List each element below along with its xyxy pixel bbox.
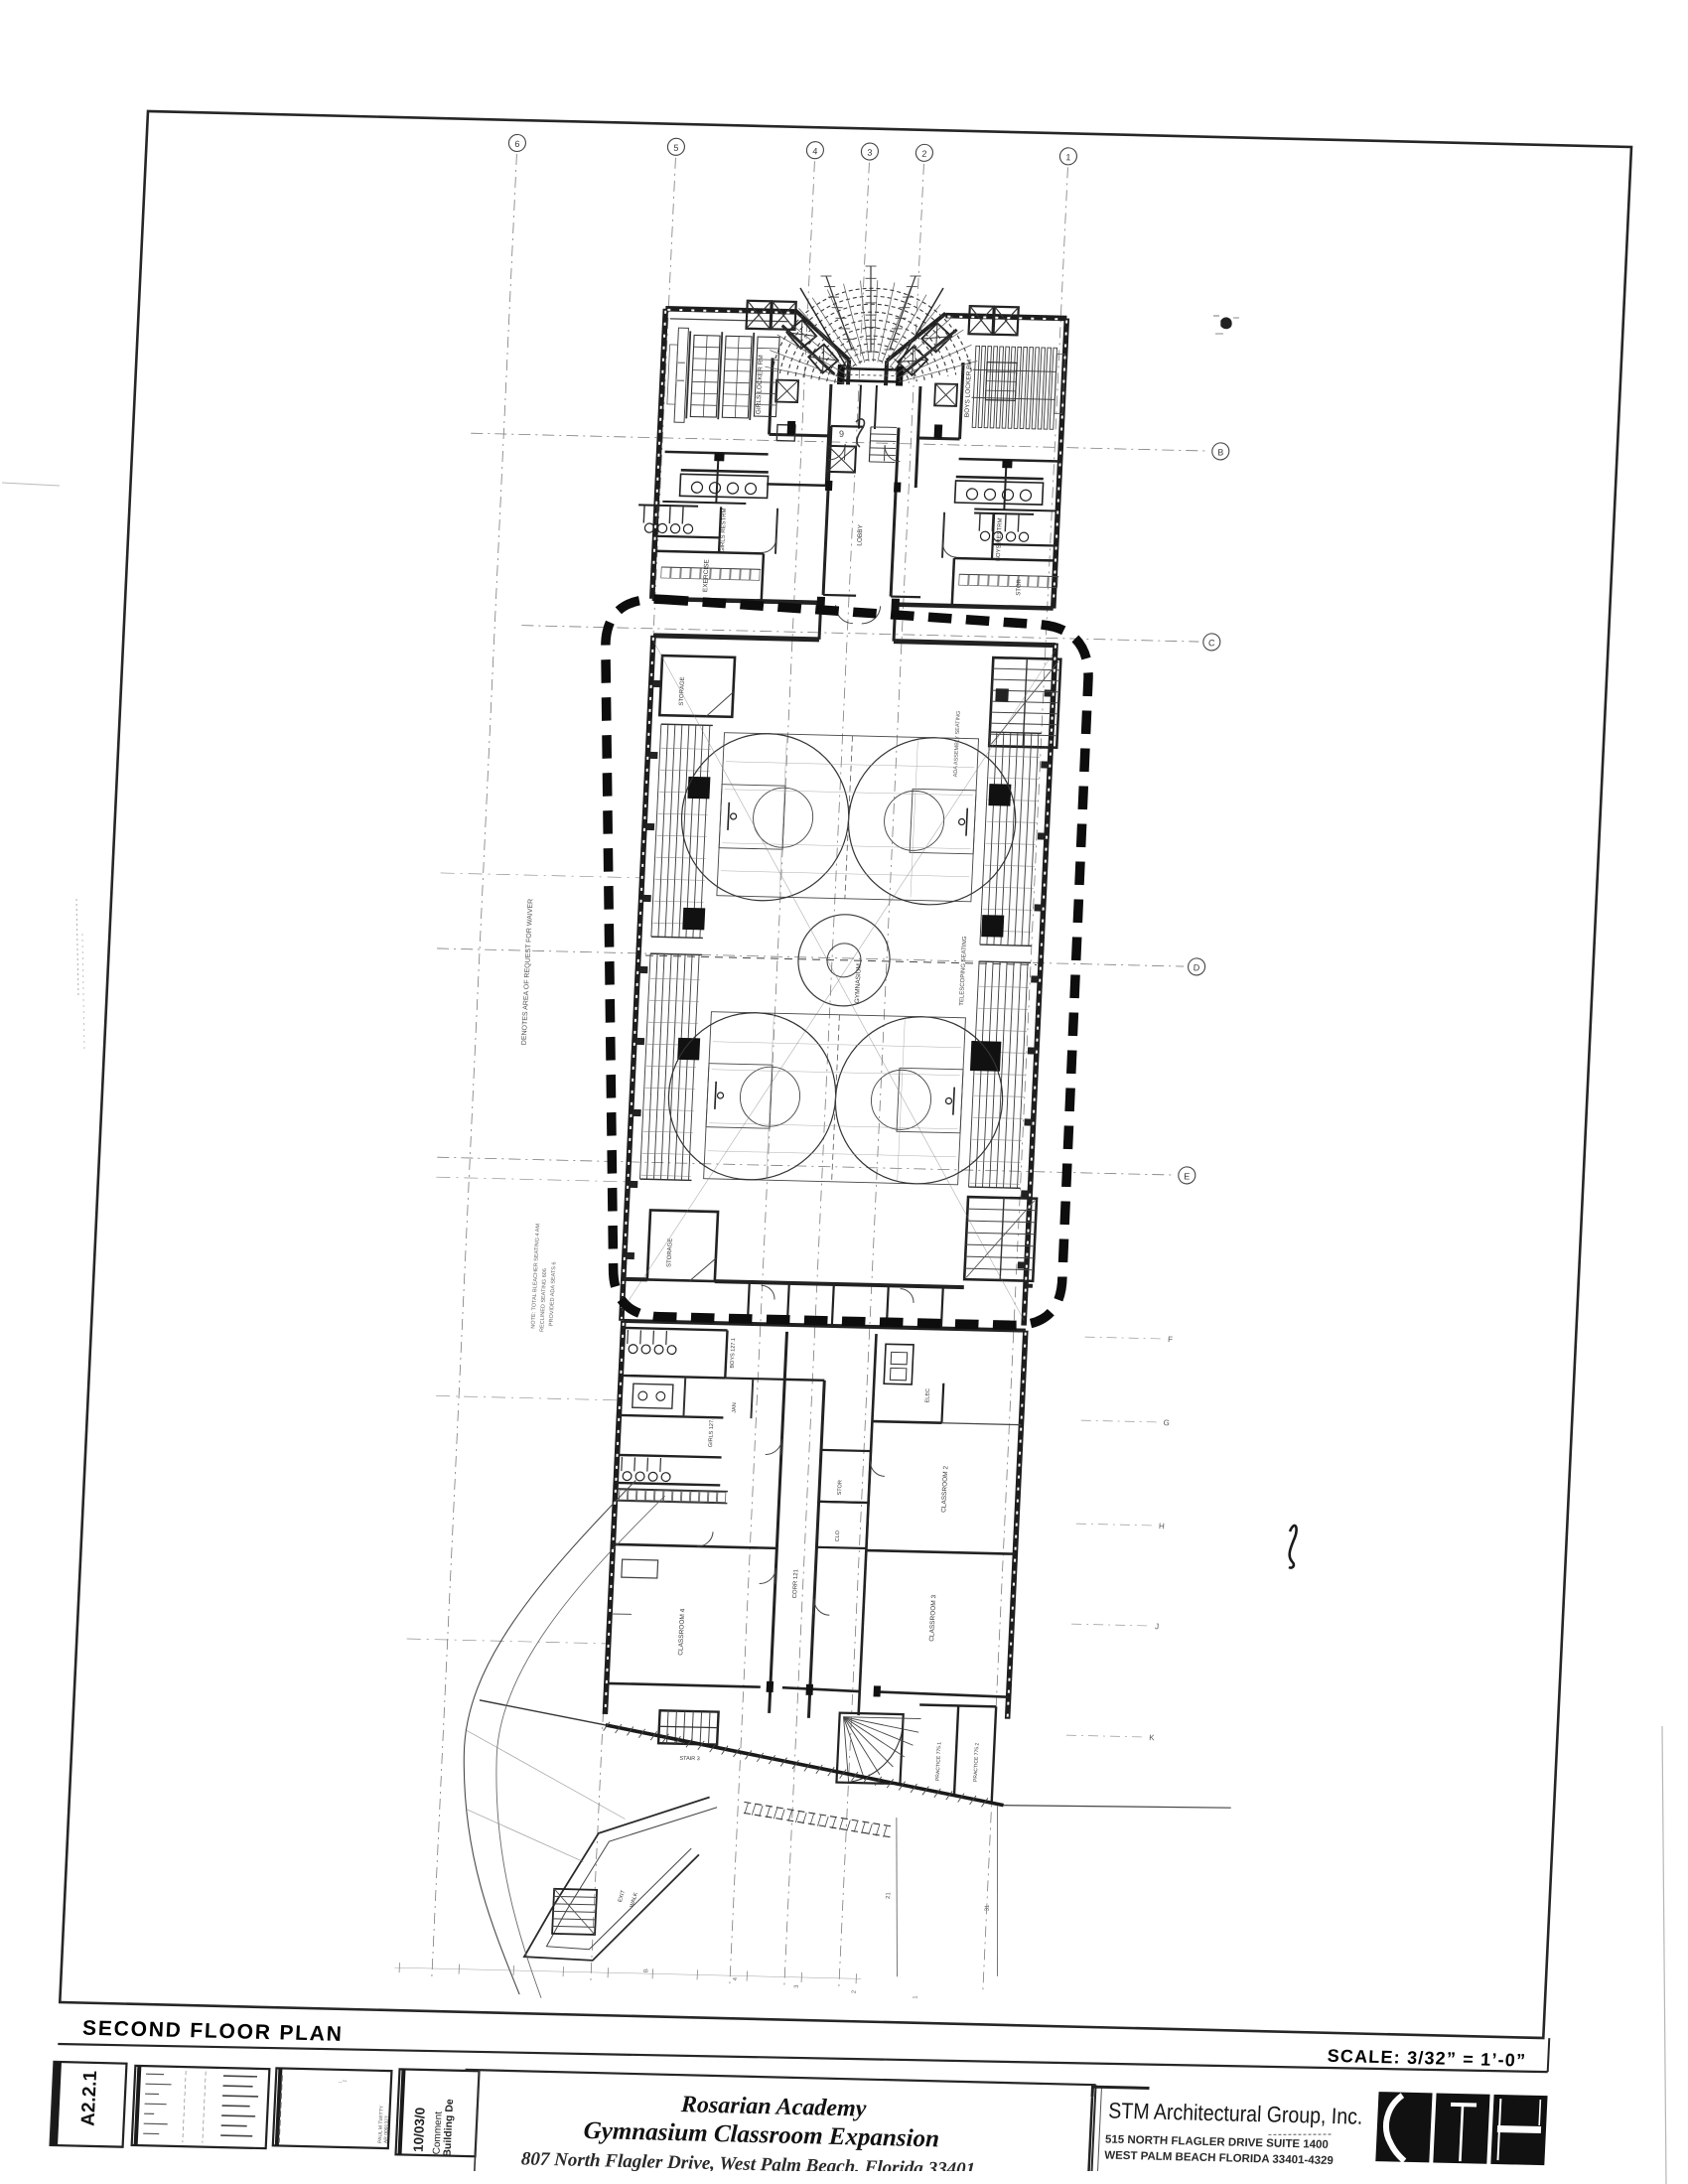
svg-text:1: 1 xyxy=(1065,152,1070,162)
svg-text:2: 2 xyxy=(921,149,926,159)
svg-text:ELEC: ELEC xyxy=(924,1388,931,1403)
svg-text:E: E xyxy=(1184,1171,1190,1181)
svg-text:10/03/0: 10/03/0 xyxy=(411,2108,428,2152)
svg-text:Rosarian Academy: Rosarian Academy xyxy=(679,2092,867,2122)
svg-text:JAN: JAN xyxy=(732,1402,738,1413)
svg-text:J: J xyxy=(1155,1622,1159,1631)
svg-text:LOBBY: LOBBY xyxy=(856,523,864,545)
svg-text:CLO: CLO xyxy=(835,1529,842,1541)
svg-text:31: 31 xyxy=(985,1904,991,1911)
svg-text:STAIR 3: STAIR 3 xyxy=(679,1756,700,1762)
svg-text:B: B xyxy=(1217,447,1223,457)
svg-text:B: B xyxy=(643,1968,649,1972)
svg-text:STOR: STOR xyxy=(837,1480,844,1495)
svg-text:21: 21 xyxy=(886,1892,892,1899)
svg-text:F: F xyxy=(1168,1335,1173,1344)
svg-text:H: H xyxy=(1159,1522,1165,1530)
svg-text:4: 4 xyxy=(812,146,817,156)
svg-text:..--: ..-- xyxy=(339,2078,349,2085)
svg-text:9: 9 xyxy=(839,429,844,439)
svg-text:3: 3 xyxy=(867,147,872,157)
svg-text:C: C xyxy=(1208,638,1215,648)
svg-text:D: D xyxy=(1194,962,1200,972)
svg-text:6: 6 xyxy=(514,139,519,149)
svg-text:G: G xyxy=(1163,1418,1170,1427)
svg-text:5: 5 xyxy=(673,143,678,153)
svg-text:A2.2.1: A2.2.1 xyxy=(78,2070,102,2126)
